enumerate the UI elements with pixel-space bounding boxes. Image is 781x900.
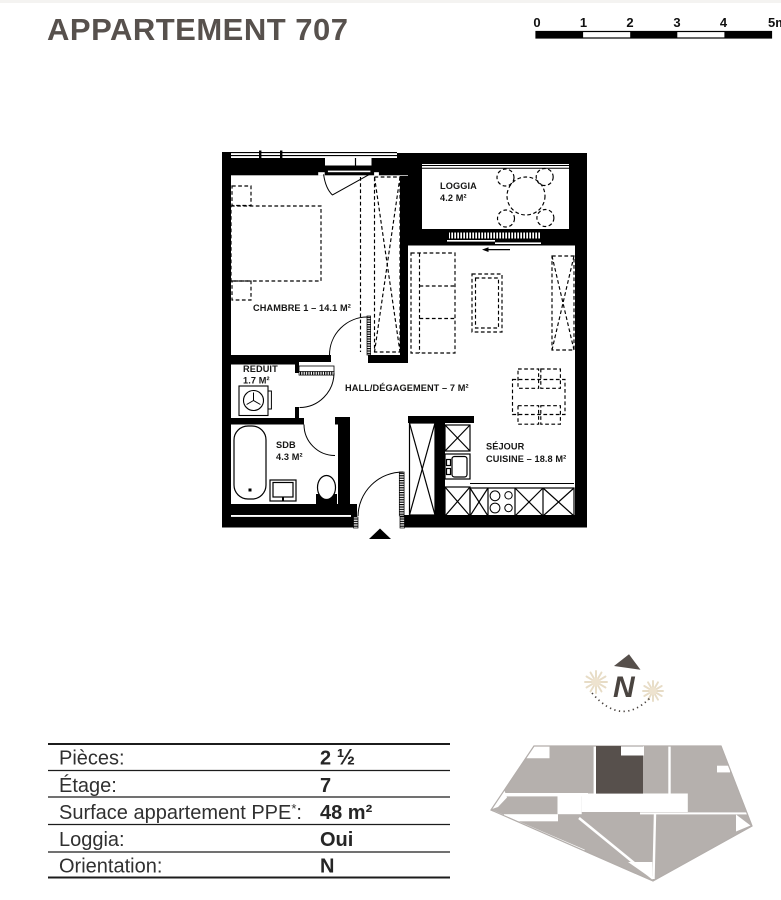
svg-text:Loggia:: Loggia: bbox=[59, 829, 125, 851]
svg-text:1: 1 bbox=[580, 15, 587, 30]
svg-text:SDB: SDB bbox=[276, 440, 296, 450]
svg-text:REDUIT: REDUIT bbox=[243, 364, 278, 374]
svg-text:APPARTEMENT 707: APPARTEMENT 707 bbox=[47, 12, 349, 47]
svg-text:4.3 M²: 4.3 M² bbox=[276, 452, 303, 462]
svg-text:Étage:: Étage: bbox=[59, 774, 117, 797]
svg-text:Orientation:: Orientation: bbox=[59, 856, 162, 878]
svg-text:0: 0 bbox=[533, 15, 540, 30]
svg-text:3: 3 bbox=[673, 15, 680, 30]
svg-text:4.2 M²: 4.2 M² bbox=[440, 193, 467, 203]
svg-text:N: N bbox=[613, 671, 636, 704]
svg-text:48 m²: 48 m² bbox=[320, 802, 373, 824]
svg-text:7: 7 bbox=[320, 775, 331, 797]
svg-text:HALL/DÉGAGEMENT – 7 M²: HALL/DÉGAGEMENT – 7 M² bbox=[345, 382, 469, 393]
svg-text:5m: 5m bbox=[768, 15, 781, 30]
svg-text:CHAMBRE 1 – 14.1 M²: CHAMBRE 1 – 14.1 M² bbox=[253, 303, 351, 313]
svg-text:CUISINE – 18.8 M²: CUISINE – 18.8 M² bbox=[486, 454, 566, 464]
svg-text:4: 4 bbox=[720, 15, 728, 30]
svg-text:Oui: Oui bbox=[320, 829, 353, 851]
svg-text:SÉJOUR: SÉJOUR bbox=[486, 441, 525, 452]
svg-text:1.7 M²: 1.7 M² bbox=[243, 376, 270, 386]
svg-text:2 ½: 2 ½ bbox=[320, 745, 355, 770]
svg-text:Surface appartement PPE*:: Surface appartement PPE*: bbox=[59, 801, 302, 824]
svg-text:2: 2 bbox=[626, 15, 633, 30]
svg-text:N: N bbox=[320, 856, 334, 878]
svg-text:Pièces:: Pièces: bbox=[59, 748, 125, 770]
svg-text:LOGGIA: LOGGIA bbox=[440, 181, 477, 191]
